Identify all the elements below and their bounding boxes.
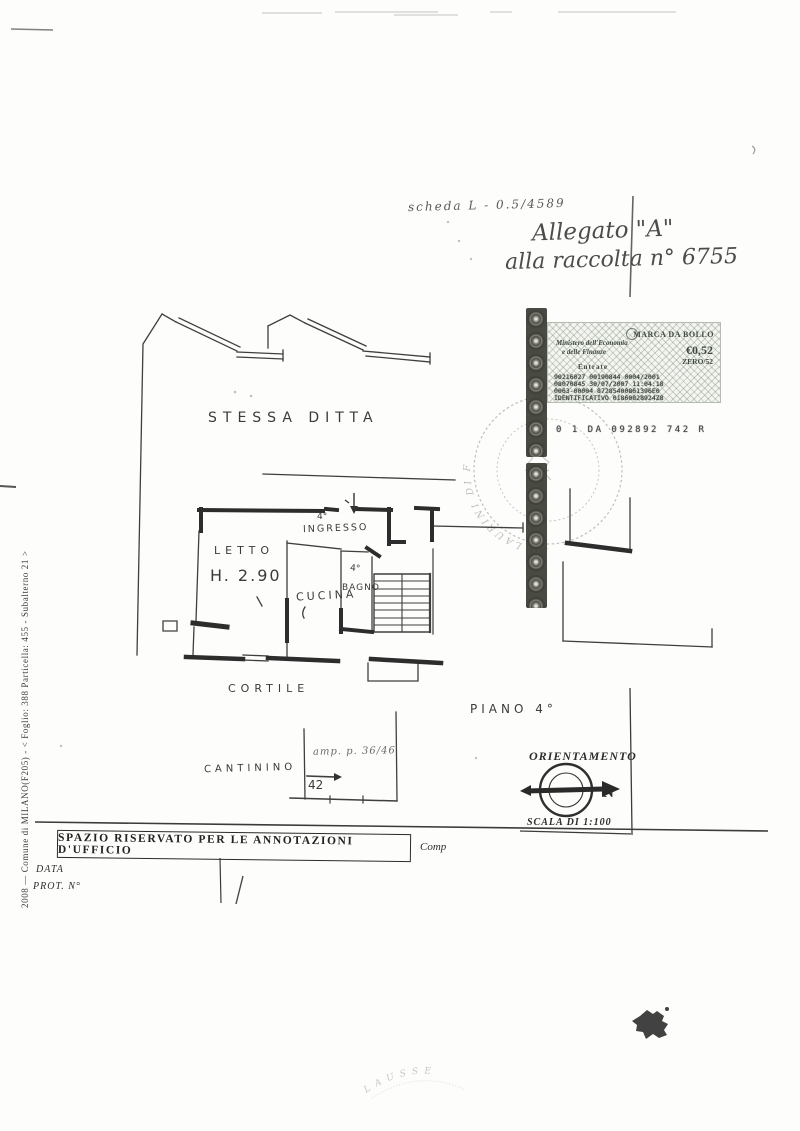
stamp-ministry-line2: e delle Finanze (562, 348, 606, 356)
security-seal-strip-bottom (526, 463, 547, 608)
room-label-ingresso: INGRESSO (303, 522, 369, 535)
office-annotations-title: SPAZIO RISERVATO PER LE ANNOTAZIONI D'UF… (58, 832, 410, 860)
margin-cadastral-reference: 2008 — Comune di MILANO(F205) - < Foglio… (20, 476, 30, 908)
faint-bottom-stamp: LAUSSE (362, 1066, 466, 1098)
scan-specks (60, 221, 477, 759)
stamp-amount: €0,52 (686, 343, 713, 358)
room-height-note: H. 2.90 (210, 566, 282, 585)
orientation-title: ORIENTAMENTO (529, 749, 637, 764)
data-label: DATA (36, 864, 64, 875)
room-label-letto: LETTO (214, 544, 274, 557)
cantina-plan (290, 712, 397, 803)
cantina-number: 42 (308, 778, 323, 792)
cantina-note: amp. p. 36/46 (313, 745, 396, 757)
stamp-agency: Entrate (578, 363, 608, 371)
ingresso-floor-mark: 4° (317, 512, 327, 522)
scan-artifacts (262, 12, 676, 15)
floor-label-piano: PIANO 4° (470, 702, 557, 716)
north-label: N (603, 785, 614, 801)
handwritten-allegato-line1: Allegato "A" (532, 216, 674, 247)
frame-lines (35, 688, 768, 904)
stamp-code-row: IDENTIFICATIVO 01860828924Z8 (554, 394, 664, 402)
room-label-bagno: BAGNO (342, 583, 380, 593)
prot-label: PROT. N° (33, 881, 81, 892)
stamp-ministry-line1: Ministero dell'Economia (556, 339, 628, 347)
scan-mark-left-edge (0, 486, 16, 487)
floor-plan-svg: PO LAURINI DI F (0, 0, 800, 1131)
stamp-serial: 0 1 DA 092892 742 R (556, 425, 706, 435)
scan-mark-right-edge (752, 146, 755, 154)
area-label-cortile: CORTILE (228, 682, 309, 695)
stamp-title: MARCA DA BOLLO (633, 330, 714, 339)
cantina-arrow-icon (334, 773, 342, 781)
scan-mark-top-left (11, 29, 53, 30)
area-label-stessa-ditta: STESSA DITTA (208, 410, 379, 426)
stamp-amount-words: ZERO/52 (682, 357, 713, 366)
scanned-document-sheet: PO LAURINI DI F (0, 0, 800, 1131)
scale-label: SCALA DI 1:100 (527, 817, 612, 828)
bagno-floor-mark: 4° (350, 564, 361, 575)
revenue-stamp: MARCA DA BOLLO Ministero dell'Economia e… (548, 323, 720, 402)
ink-blob (632, 1007, 669, 1039)
comp-label: Comp (420, 841, 446, 853)
roof-lines (137, 314, 455, 655)
office-annotations-box: SPAZIO RISERVATO PER LE ANNOTAZIONI D'UF… (57, 830, 411, 862)
security-seal-strip-top (526, 308, 547, 457)
